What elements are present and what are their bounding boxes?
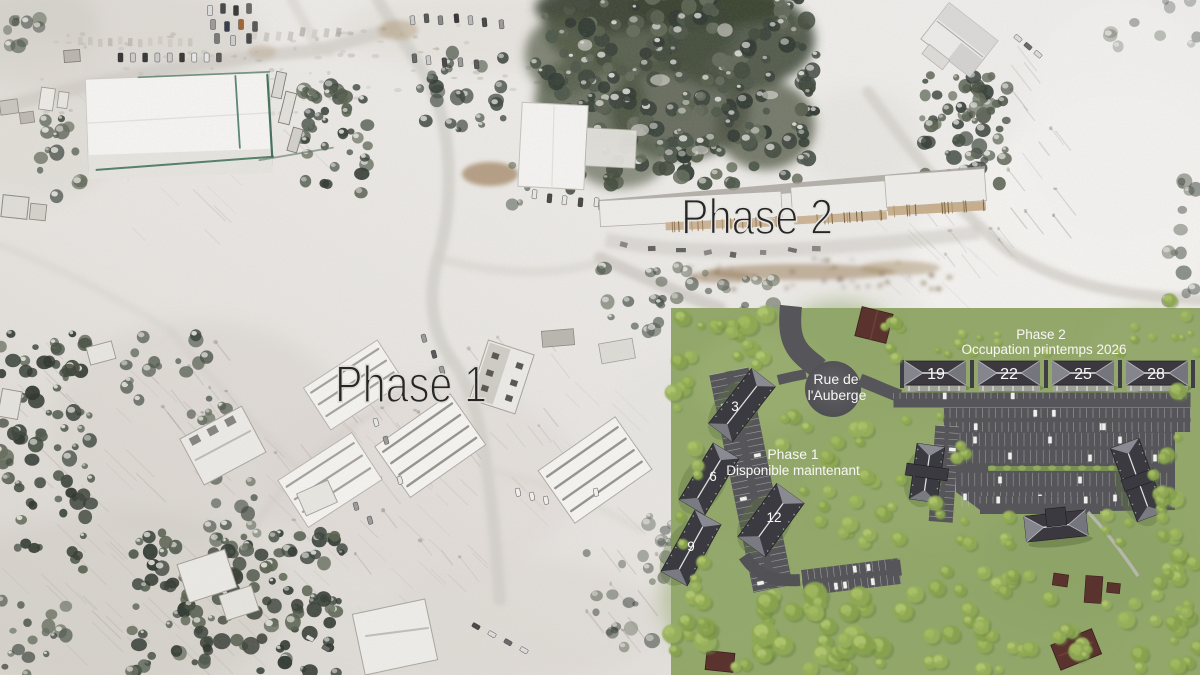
svg-text:Occupation printemps 2026: Occupation printemps 2026 — [961, 342, 1126, 357]
svg-text:12: 12 — [766, 510, 781, 525]
svg-text:22: 22 — [1000, 366, 1018, 383]
svg-text:Phase 1: Phase 1 — [767, 446, 819, 462]
svg-text:9: 9 — [687, 539, 695, 554]
svg-text:25: 25 — [1074, 366, 1092, 383]
svg-text:6: 6 — [709, 469, 717, 484]
svg-text:Rue de: Rue de — [813, 371, 858, 387]
svg-text:Phase 2: Phase 2 — [1016, 327, 1066, 342]
svg-text:28: 28 — [1147, 366, 1165, 383]
svg-text:19: 19 — [927, 366, 945, 383]
svg-text:Disponible maintenant: Disponible maintenant — [726, 463, 860, 478]
svg-text:l'Auberge: l'Auberge — [808, 387, 867, 403]
svg-text:3: 3 — [731, 399, 739, 414]
